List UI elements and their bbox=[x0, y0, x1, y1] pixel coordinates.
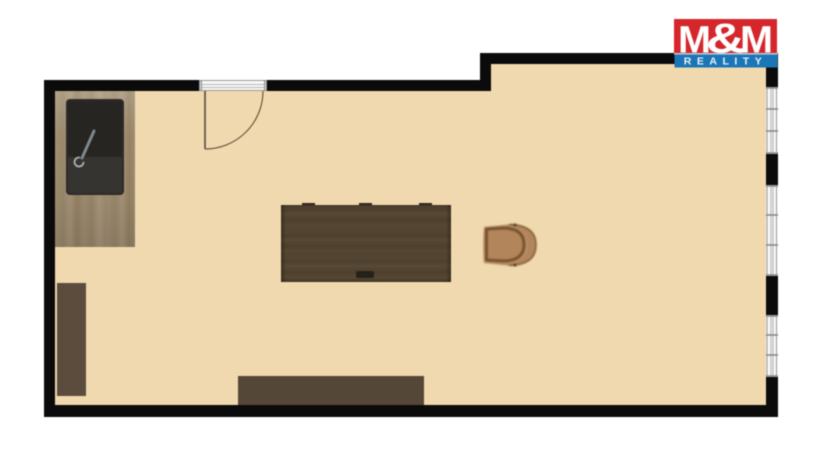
svg-text:REALITY: REALITY bbox=[684, 56, 767, 68]
